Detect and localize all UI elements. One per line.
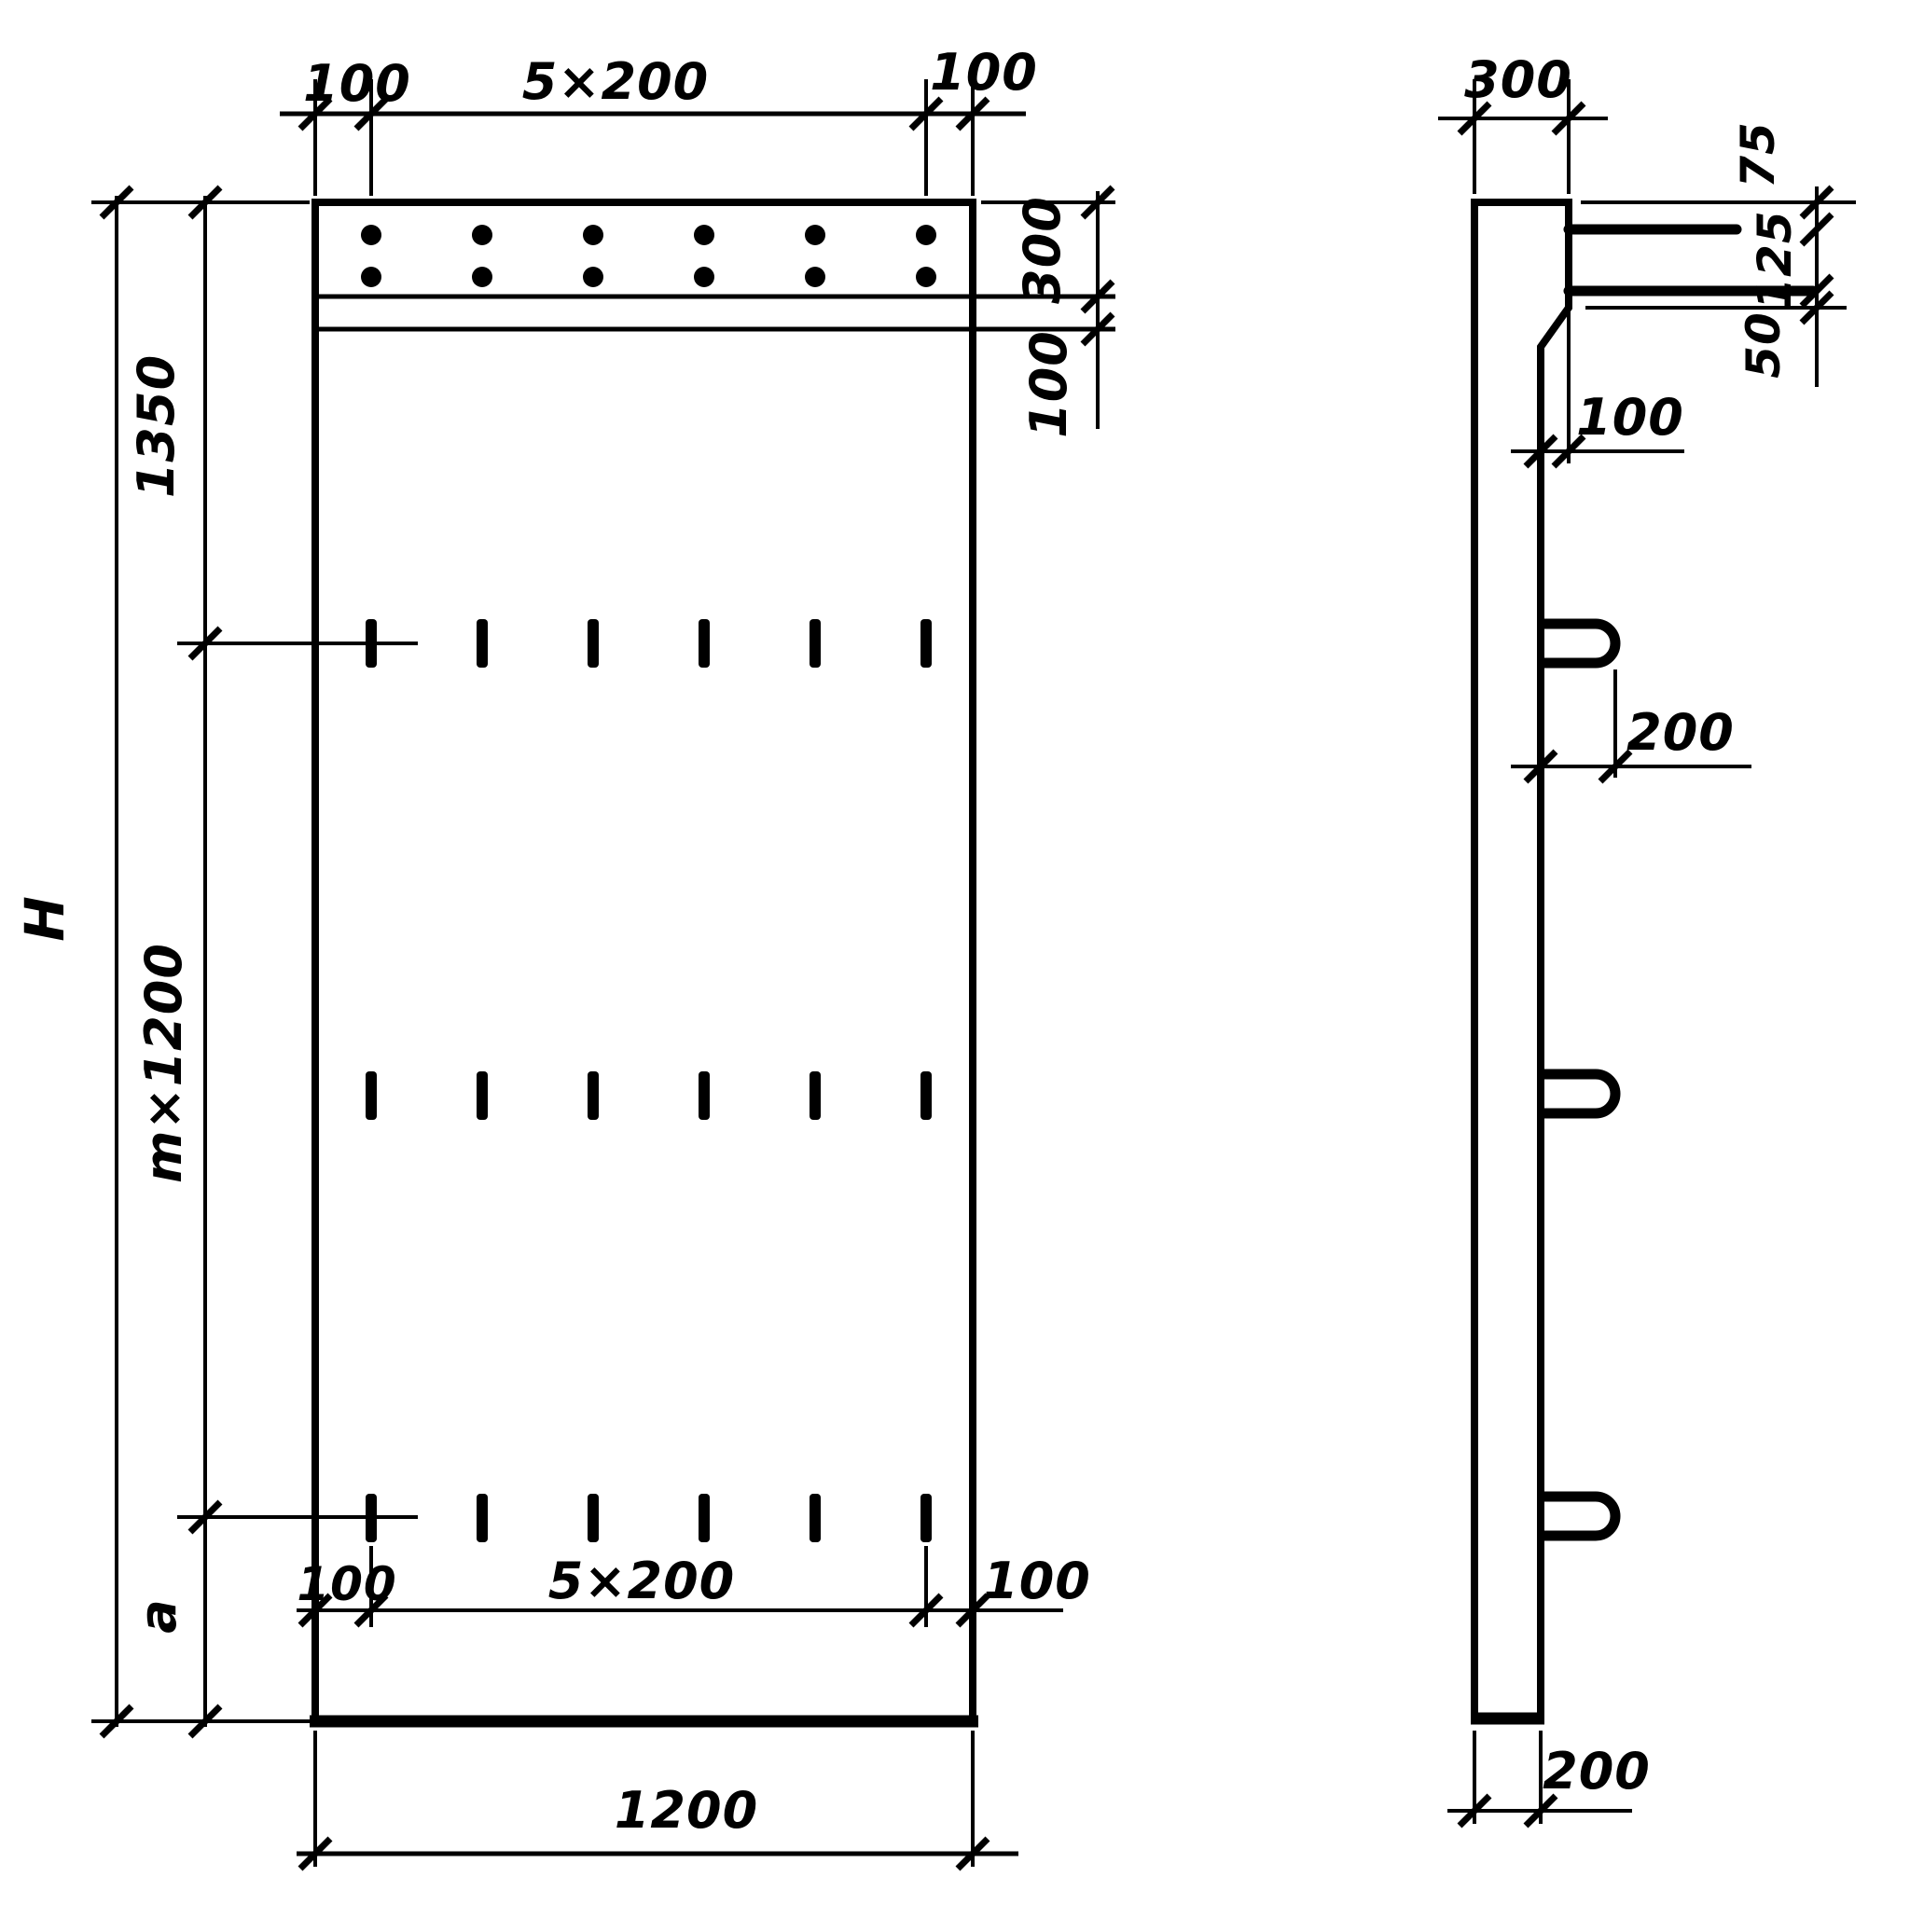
front-top-dimension: 100 5×200 100 [280,43,1038,196]
anchor-dot [361,225,381,245]
dim-top-edge-right-label: 100 [930,43,1038,102]
dim-bottom-edge-right-label: 100 [983,1552,1091,1610]
dim-top-edge-left-label: 100 [303,54,411,113]
anchor-dot [583,267,603,287]
lifting-loop [1541,624,1615,663]
slot-mark [920,619,932,668]
side-view: 300 75 125 50 100 200 [1438,50,1856,1826]
dim-cap-height-label: 300 [1013,196,1072,304]
slot-mark [699,619,710,668]
slot-mark [810,1071,821,1120]
dim-loop-projection-label: 200 [1626,703,1735,762]
dim-bottom-edge-left-label: 100 [297,1557,396,1611]
slot-mark-rows [366,619,932,1542]
slot-mark [810,1494,821,1542]
side-top-dimension: 300 [1438,50,1608,194]
dim-left-middle-label: m×1200 [134,943,193,1183]
anchor-dot [583,225,603,245]
side-bottom-dimension: 200 [1447,1731,1651,1826]
anchor-dot [916,267,936,287]
dim-left-upper-label: 1350 [127,354,186,498]
slot-mark [920,1071,932,1120]
dim-step-offset-label: 100 [1576,388,1684,447]
anchor-dot [805,225,825,245]
slot-mark [588,619,599,668]
anchor-dot [472,225,492,245]
panel-shop-drawing: 100 5×200 100 H 1350 m×1200 a [0,0,1910,1932]
anchor-dot-rows [361,225,936,287]
front-left-dimensions: H 1350 m×1200 a [13,187,418,1736]
dim-bar-top-label: 75 [1731,121,1785,188]
dim-overall-height-label: H [13,895,76,942]
dim-bottom-spacing-label: 5×200 [548,1552,736,1610]
slot-mark [920,1494,932,1542]
dim-overall-width-label: 1200 [615,1781,758,1840]
front-bottom-overall-dimension: 1200 [297,1731,1018,1869]
dim-side-top-width-label: 300 [1464,50,1572,109]
anchor-dot [472,267,492,287]
drawing-sheet: 100 5×200 100 H 1350 m×1200 a [0,0,1910,1932]
side-upper-right-dimensions: 75 125 50 [1731,121,1832,387]
slot-mark [477,619,488,668]
anchor-dot [805,267,825,287]
slot-mark [477,1071,488,1120]
dim-bar-spacing-label: 125 [1748,210,1802,310]
lifting-loop [1541,1074,1615,1113]
dim-below-cap-label: 100 [1019,330,1078,438]
front-right-dimensions: 300 100 [1013,187,1113,438]
lifting-loop [1541,1497,1615,1536]
side-panel-outline [1474,202,1569,1718]
dim-side-bottom-width-label: 200 [1543,1742,1651,1801]
slot-mark [699,1071,710,1120]
anchor-dot [694,225,714,245]
slot-mark [588,1494,599,1542]
dim-bar-bottom-label: 50 [1737,311,1791,379]
dim-top-spacing-label: 5×200 [522,52,710,111]
side-step-dimension: 100 [1511,311,1684,466]
slot-mark [366,1071,377,1120]
slot-mark [588,1071,599,1120]
side-loop-dimension: 200 [1511,669,1751,781]
panel-outline [315,202,973,1721]
slot-mark [477,1494,488,1542]
dim-left-lower-label: a [129,1598,187,1633]
anchor-dot [916,225,936,245]
front-view: 100 5×200 100 H 1350 m×1200 a [13,43,1115,1869]
anchor-dot [361,267,381,287]
slot-mark [699,1494,710,1542]
slot-mark [810,619,821,668]
anchor-dot [694,267,714,287]
